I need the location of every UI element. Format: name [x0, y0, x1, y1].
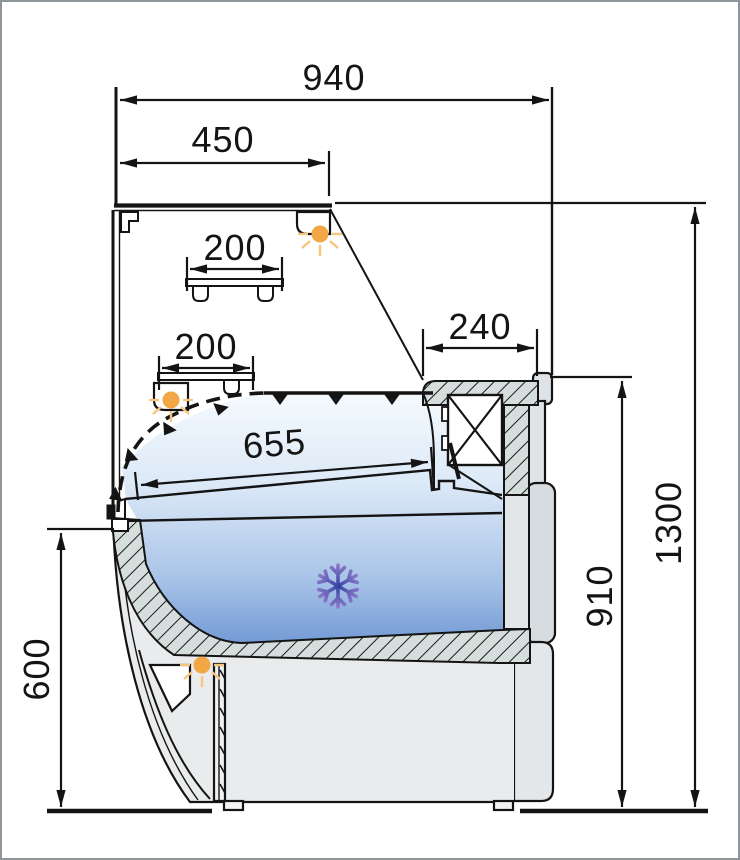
upper-shelf-foot-right: [258, 286, 273, 301]
lower-shelf-foot: [224, 380, 239, 394]
glass-frame-bracket: [112, 519, 128, 531]
front-foot: [224, 801, 243, 810]
dim-label-rear-height: 910: [579, 564, 620, 627]
upper-shelf-board: [186, 279, 283, 286]
rear-mid-panel: [526, 483, 555, 643]
dim-label-front-height: 600: [16, 637, 57, 700]
plinth-divider: [214, 664, 225, 801]
dim-label-lower-shelf: 200: [174, 326, 237, 367]
dim-label-total-width: 940: [302, 57, 365, 98]
technical-drawing-canvas: 940 450 200 200 240 655 600 910 1300: [0, 0, 740, 860]
dim-label-rear-top: 240: [448, 306, 511, 347]
rear-strip: [528, 401, 545, 485]
rear-lower-panel: [514, 642, 553, 801]
duct-clip-lower: [442, 436, 448, 450]
dim-label-upper-shelf: 200: [203, 227, 266, 268]
refrigerated-zone: [122, 394, 504, 649]
glass-frame-block: [107, 505, 115, 519]
dim-label-deck-depth: 655: [241, 421, 307, 467]
rear-glass-diagonal: [330, 209, 423, 380]
dim-label-canopy-width: 450: [191, 119, 254, 160]
lower-shelf-board: [158, 373, 254, 380]
upper-shelf-foot-left: [193, 286, 208, 301]
canopy-left-bracket: [121, 212, 138, 232]
duct-clip-upper: [442, 407, 448, 421]
rear-foot: [494, 801, 513, 810]
dim-label-total-height: 1300: [648, 481, 689, 565]
cross-section-diagram: 940 450 200 200 240 655 600 910 1300: [2, 2, 740, 860]
rear-wall-panel: [504, 495, 529, 629]
rear-wall-insulation: [504, 405, 529, 495]
